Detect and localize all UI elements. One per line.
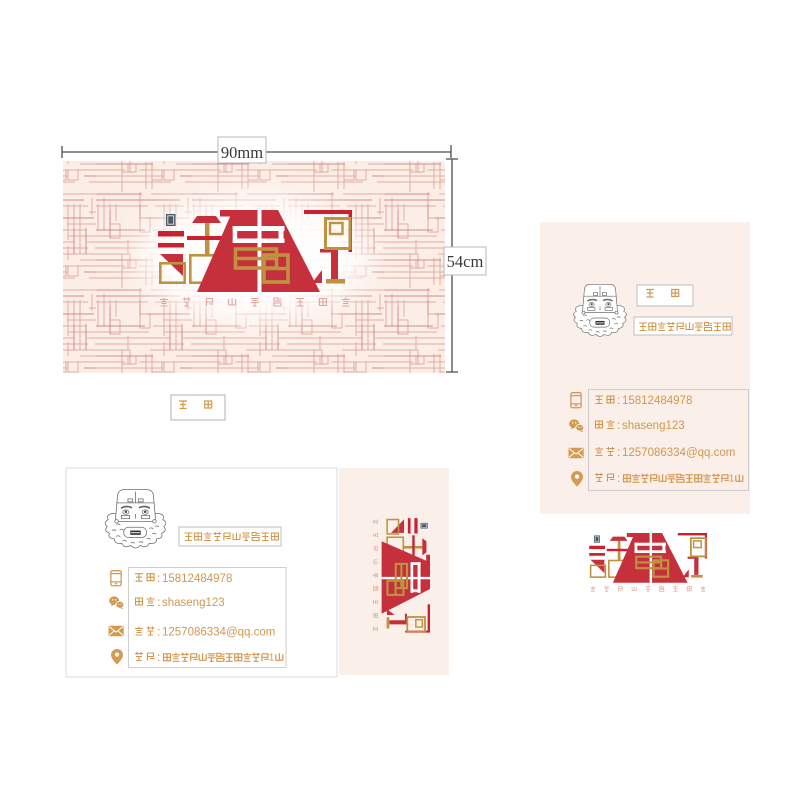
svg-text:1: 1 (269, 652, 275, 663)
svg-text:15812484978: 15812484978 (622, 395, 692, 407)
svg-text::: : (617, 445, 620, 459)
svg-text:54cm: 54cm (447, 252, 484, 271)
svg-text::: : (617, 471, 620, 485)
svg-text::: : (617, 393, 620, 407)
svg-text::: : (617, 418, 620, 432)
svg-text:1257086334@qq.com: 1257086334@qq.com (622, 447, 735, 459)
svg-text::: : (157, 650, 160, 664)
svg-text:shaseng123: shaseng123 (162, 597, 225, 609)
svg-text::: : (157, 571, 160, 585)
svg-text:shaseng123: shaseng123 (622, 420, 685, 432)
svg-text:1257086334@qq.com: 1257086334@qq.com (162, 627, 275, 639)
svg-text:90mm: 90mm (221, 143, 263, 162)
svg-text::: : (157, 595, 160, 609)
svg-text::: : (157, 625, 160, 639)
svg-text:1: 1 (729, 473, 735, 484)
svg-text:15812484978: 15812484978 (162, 573, 232, 585)
